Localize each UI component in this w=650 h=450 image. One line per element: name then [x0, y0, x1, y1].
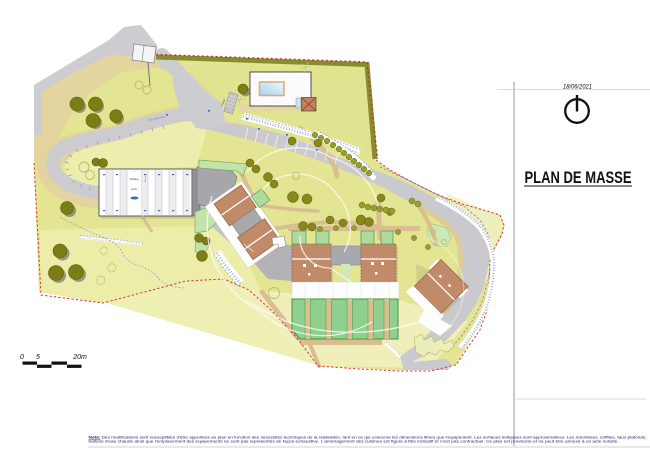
svg-text:0: 0 [20, 354, 24, 361]
svg-text:PLAN DE MASSE: PLAN DE MASSE [525, 169, 632, 187]
svg-text:20m: 20m [72, 354, 87, 361]
svg-text:5: 5 [36, 354, 40, 361]
svg-text:Acces: Acces [144, 175, 147, 182]
svg-text:ballons d'eau chaude ainsi que: ballons d'eau chaude ainsi que l'emplace… [89, 439, 619, 444]
svg-text:Parking: Parking [130, 177, 139, 181]
svg-text:public: public [131, 188, 138, 191]
svg-text:18/06/2021: 18/06/2021 [563, 84, 592, 91]
